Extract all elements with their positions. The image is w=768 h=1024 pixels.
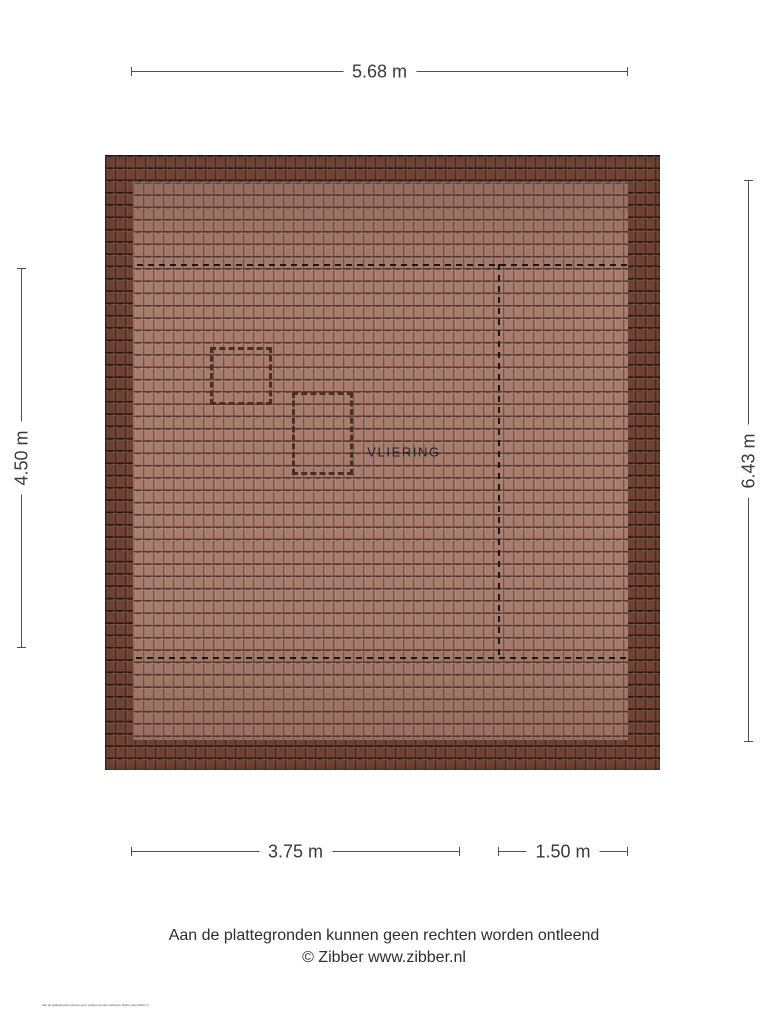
roof-plan: VLIERING — [105, 155, 660, 770]
footer-disclaimer: Aan de plattegronden kunnen geen rechten… — [0, 925, 768, 947]
roof-hatch-outline-1 — [210, 347, 272, 405]
attic-boundary-line-bottom — [136, 657, 627, 659]
dimension-top-label: 5.68 m — [343, 62, 416, 83]
attic-boundary-line-top — [137, 264, 627, 266]
dimension-line-bottom-left: 3.75 m — [131, 851, 460, 852]
dimension-line-top: 5.68 m — [131, 71, 628, 72]
dimension-line-bottom-right: 1.50 m — [498, 851, 628, 852]
dimension-bottom-left-label: 3.75 m — [259, 842, 332, 863]
attic-boundary-line-right — [498, 264, 500, 659]
floorplan-page: 5.68 m 4.50 m 6.43 m VLIERING 3.75 m 1.5… — [0, 0, 768, 1024]
footer-credit: © Zibber www.zibber.nl — [0, 947, 768, 969]
dimension-left-label: 4.50 m — [12, 421, 33, 494]
roof-hatch-outline-2 — [292, 392, 353, 475]
dimension-line-right: 6.43 m — [748, 180, 749, 742]
dimension-right-label: 6.43 m — [739, 424, 760, 497]
micro-disclaimer-note: Aan de plattegronden kunnen geen rechten… — [42, 1003, 148, 1007]
dimension-bottom-right-label: 1.50 m — [526, 842, 599, 863]
footer: Aan de plattegronden kunnen geen rechten… — [0, 925, 768, 969]
dimension-line-left: 4.50 m — [21, 268, 22, 648]
room-label-vliering: VLIERING — [367, 445, 440, 460]
